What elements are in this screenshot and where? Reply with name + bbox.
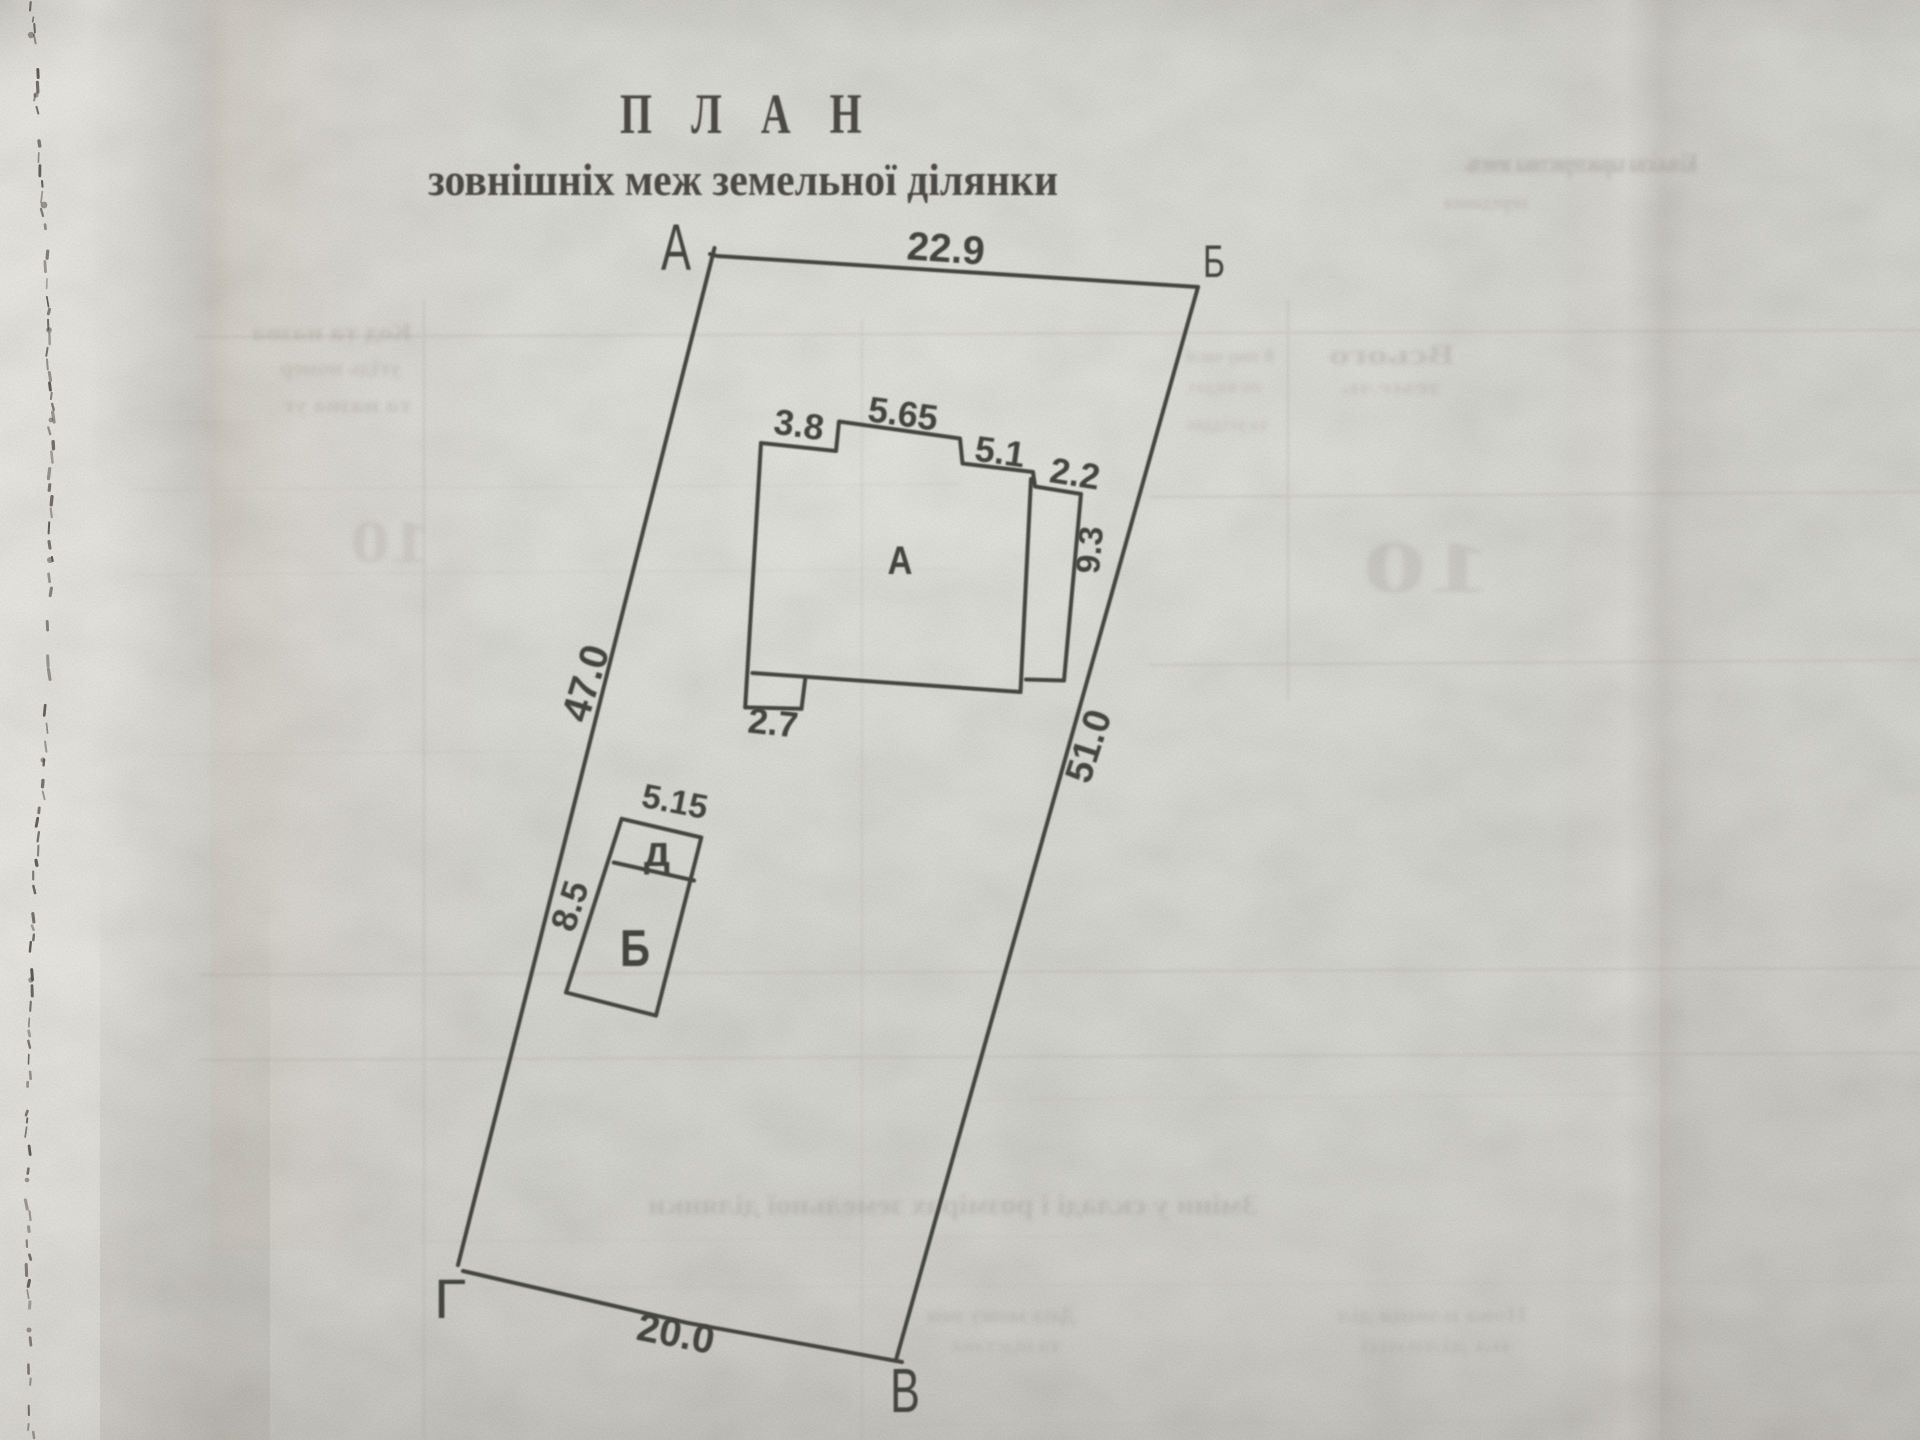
svg-text:10: 10 (1362, 527, 1492, 609)
svg-text:угідь номер: угідь номер (280, 355, 400, 380)
svg-text:Г: Г (434, 1267, 466, 1330)
svg-text:та угіддях: та угіддях (1186, 414, 1268, 434)
svg-text:22.9: 22.9 (906, 224, 987, 273)
svg-text:Всього: Всього (1329, 340, 1455, 371)
svg-text:Зміни у складі і розмірах земе: Зміни у складі і розмірах земельної діля… (648, 1189, 1258, 1221)
svg-text:В тому числі: В тому числі (1186, 346, 1274, 366)
svg-text:на ділянці: на ділянці (1359, 1335, 1510, 1357)
svg-text:2.2: 2.2 (1047, 449, 1103, 497)
svg-text:Б: Б (1203, 236, 1225, 287)
svg-text:В: В (890, 1357, 920, 1426)
svg-text:Код та назва: Код та назва (252, 320, 412, 346)
svg-text:Кількісна характеристика земел: Кількісна характеристика земель (1466, 148, 1697, 178)
svg-text:д: д (644, 827, 670, 876)
svg-text:Б: Б (620, 920, 650, 978)
svg-text:3.8: 3.8 (771, 401, 826, 449)
svg-text:П Л А Н: П Л А Н (620, 83, 876, 146)
svg-text:земель: земель (1341, 374, 1442, 399)
svg-text:Дата запису змін: Дата запису змін (927, 1302, 1075, 1327)
svg-text:2.7: 2.7 (746, 699, 800, 745)
svg-text:А: А (888, 539, 913, 583)
svg-text:Нова площа діл: Нова площа діл (1337, 1302, 1527, 1327)
svg-text:та назва уг: та назва уг (282, 392, 412, 417)
svg-text:зовнішніх меж земельної ділянк: зовнішніх меж земельної ділянки (428, 154, 1058, 205)
svg-text:передання: передання (1444, 192, 1528, 214)
svg-text:А: А (661, 210, 691, 284)
svg-text:9.3: 9.3 (1069, 525, 1111, 575)
svg-text:по видах: по видах (1187, 376, 1262, 396)
svg-text:10: 10 (350, 509, 430, 575)
svg-text:5.1: 5.1 (972, 428, 1027, 476)
svg-text:та підстава: та підстава (952, 1335, 1060, 1357)
